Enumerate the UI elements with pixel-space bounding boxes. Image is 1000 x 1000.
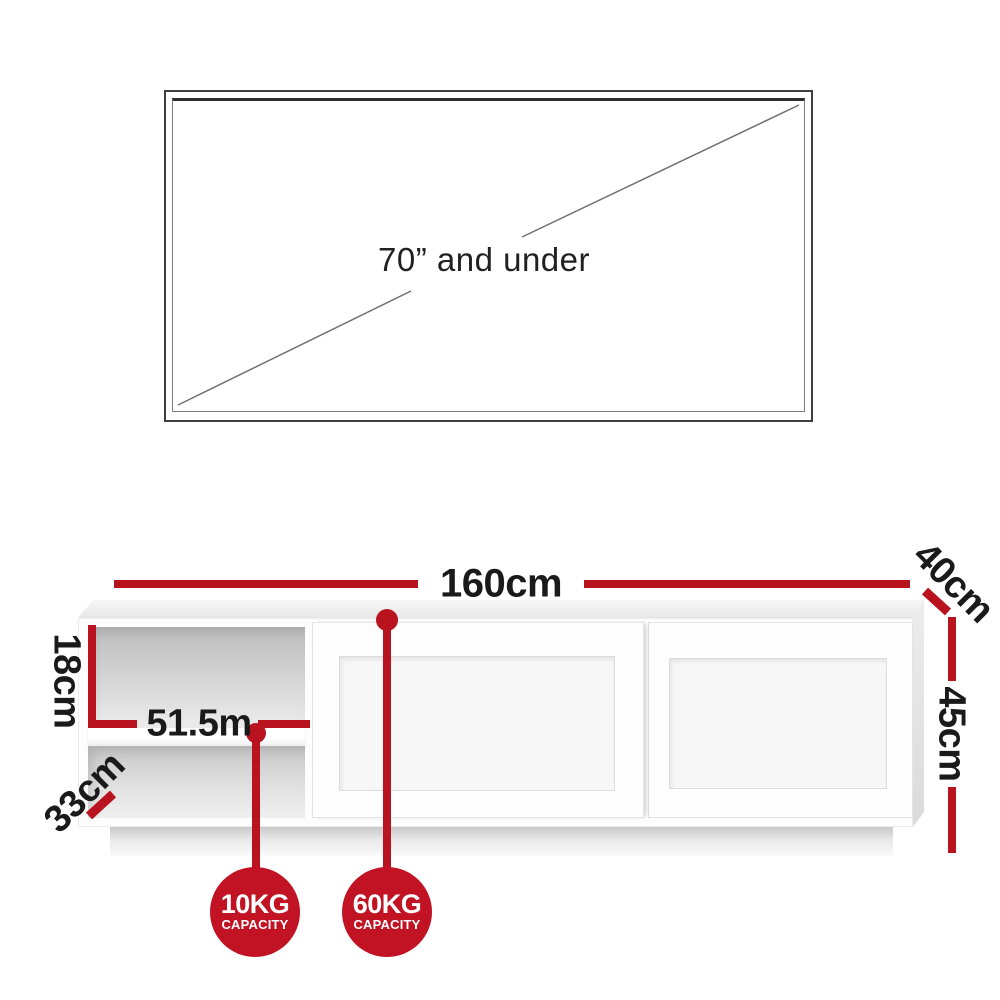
tv-screen-frame: 70” and under [172,98,805,412]
cabinet-plinth [110,827,893,856]
shelf-height-dimension-label: 18cm [45,633,88,728]
width-dimension-label: 160cm [440,562,562,607]
capacity-badge-60kg-caption: CAPACITY [353,918,420,933]
door-panel-left [339,656,615,791]
sliding-door-right [648,622,913,818]
height-dimension-label: 45cm [930,686,973,781]
tv-size-label: 70” and under [378,241,590,279]
door-panel-right [669,658,887,789]
shelf-width-dimension-label: 51.5m [146,703,251,746]
capacity-badge-60kg: 60KG CAPACITY [342,867,432,957]
capacity-badge-10kg-caption: CAPACITY [221,918,288,933]
cabinet-side-face [913,600,924,827]
sliding-door-left [312,622,644,818]
capacity-badge-10kg: 10KG CAPACITY [210,867,300,957]
tv-outline: 70” and under [164,90,813,422]
capacity-badge-10kg-value: 10KG [221,891,290,918]
capacity-badge-60kg-value: 60KG [353,891,422,918]
product-dimension-diagram: 70” and under 160cm 40cm 45cm 18cm [0,0,1000,1000]
